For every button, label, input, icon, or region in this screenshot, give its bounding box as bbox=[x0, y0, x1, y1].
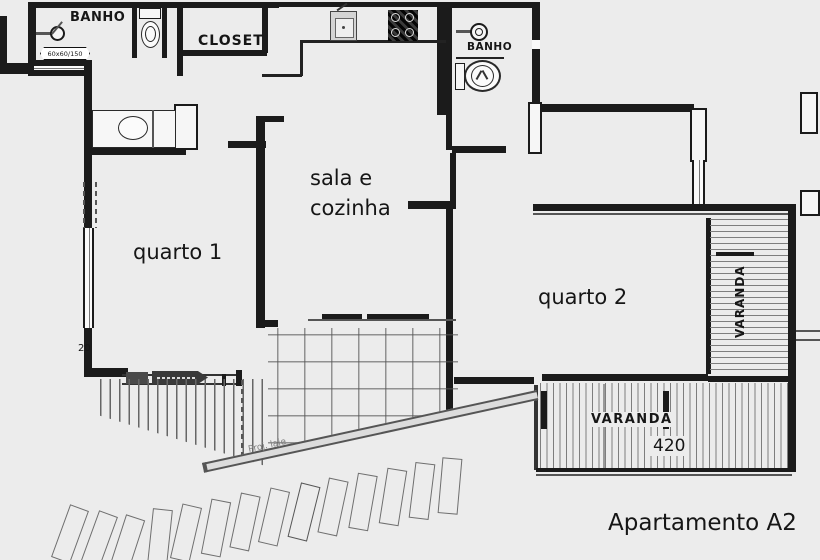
vanity-sink-icon bbox=[118, 116, 148, 140]
room-label-sala-line2: cozinha bbox=[310, 196, 391, 220]
wall-segment bbox=[183, 50, 267, 56]
wall-segment bbox=[542, 374, 708, 381]
toilet-bowl-inner bbox=[471, 65, 494, 87]
room-label-quarto2: quarto 2 bbox=[538, 285, 627, 309]
partition-line bbox=[456, 57, 504, 59]
wall-dimension: 20 bbox=[78, 343, 91, 354]
paver-strip bbox=[170, 503, 202, 560]
room-label-closet: CLOSET bbox=[198, 33, 264, 49]
wall-segment bbox=[533, 204, 795, 211]
wall-segment bbox=[536, 468, 792, 472]
paver-strip bbox=[229, 493, 260, 552]
wall-segment bbox=[132, 6, 137, 58]
wall-segment bbox=[708, 376, 788, 382]
wall-segment bbox=[177, 6, 183, 76]
wall-face-line bbox=[536, 474, 792, 476]
bench-bar bbox=[716, 252, 754, 256]
window-tag: 60x60/150 bbox=[40, 47, 90, 60]
paver-strip bbox=[317, 478, 348, 537]
wall-segment bbox=[256, 120, 265, 328]
wall-segment bbox=[437, 2, 446, 115]
wall-segment bbox=[256, 320, 278, 327]
counter-edge bbox=[300, 40, 448, 43]
room-label-banho-suite: BANHO bbox=[70, 10, 125, 25]
stove-icon bbox=[388, 10, 418, 41]
wall-segment bbox=[542, 104, 694, 112]
paver-strip bbox=[258, 487, 290, 546]
wall-segment bbox=[446, 2, 452, 150]
wall-pier bbox=[690, 108, 707, 162]
wall-pier bbox=[528, 102, 542, 154]
section-tick bbox=[796, 330, 820, 332]
window bbox=[83, 228, 94, 328]
rail-line bbox=[308, 319, 456, 321]
wall-segment bbox=[532, 51, 540, 104]
room-label-banho-social: BANHO bbox=[467, 41, 512, 53]
paver-strip bbox=[348, 473, 377, 532]
toilet-tank-icon bbox=[139, 8, 161, 19]
window-tag-text: 60x60/150 bbox=[48, 50, 83, 58]
room-label-varanda-lateral: VARANDA bbox=[733, 262, 747, 342]
wall-segment bbox=[788, 204, 796, 472]
wall-pier bbox=[800, 190, 820, 216]
paver-strip bbox=[438, 457, 463, 515]
paver-strip bbox=[147, 508, 173, 560]
room-label-varanda-frontal: VARANDA bbox=[588, 412, 676, 427]
wall-segment bbox=[84, 148, 186, 155]
counter-edge bbox=[300, 42, 303, 76]
wall-face-line bbox=[533, 213, 795, 215]
shower-icon-inner bbox=[475, 28, 483, 36]
wall-segment bbox=[454, 377, 534, 384]
stair-dashed-line bbox=[241, 380, 243, 460]
section-tick bbox=[796, 339, 820, 341]
toilet-bowl-inner bbox=[145, 26, 156, 42]
room-label-quarto1: quarto 1 bbox=[133, 240, 222, 264]
varanda-lateral-decking bbox=[710, 219, 788, 375]
door-projection-dashes bbox=[83, 182, 85, 228]
wall-segment bbox=[448, 2, 538, 8]
dimension-420: 420 bbox=[650, 436, 688, 456]
wall-segment bbox=[162, 6, 167, 58]
paver-strip bbox=[288, 482, 321, 541]
window bbox=[34, 64, 84, 72]
kitchen-sink-icon bbox=[330, 11, 357, 41]
wall-cavity bbox=[174, 104, 198, 150]
wall-segment bbox=[450, 153, 456, 207]
wall-segment bbox=[452, 146, 506, 153]
floor-plan: 60x60/150 BANHO CLOSET BANHO bbox=[0, 0, 820, 560]
window bbox=[692, 160, 705, 208]
paver-strip bbox=[201, 499, 231, 558]
counter-edge bbox=[262, 74, 302, 77]
post bbox=[541, 391, 547, 429]
paver-strip bbox=[379, 468, 408, 526]
window bbox=[532, 38, 540, 51]
room-label-sala-line1: sala e bbox=[310, 166, 372, 190]
wall-segment bbox=[0, 16, 7, 70]
wall-segment bbox=[270, 2, 448, 7]
paver-strip bbox=[409, 462, 436, 520]
counter-divider bbox=[152, 110, 154, 148]
wall-segment bbox=[28, 2, 36, 62]
wall-pier bbox=[800, 92, 818, 134]
door-projection-dashes bbox=[95, 182, 97, 228]
plan-title: Apartamento A2 bbox=[608, 510, 797, 536]
wall-segment bbox=[532, 2, 540, 38]
